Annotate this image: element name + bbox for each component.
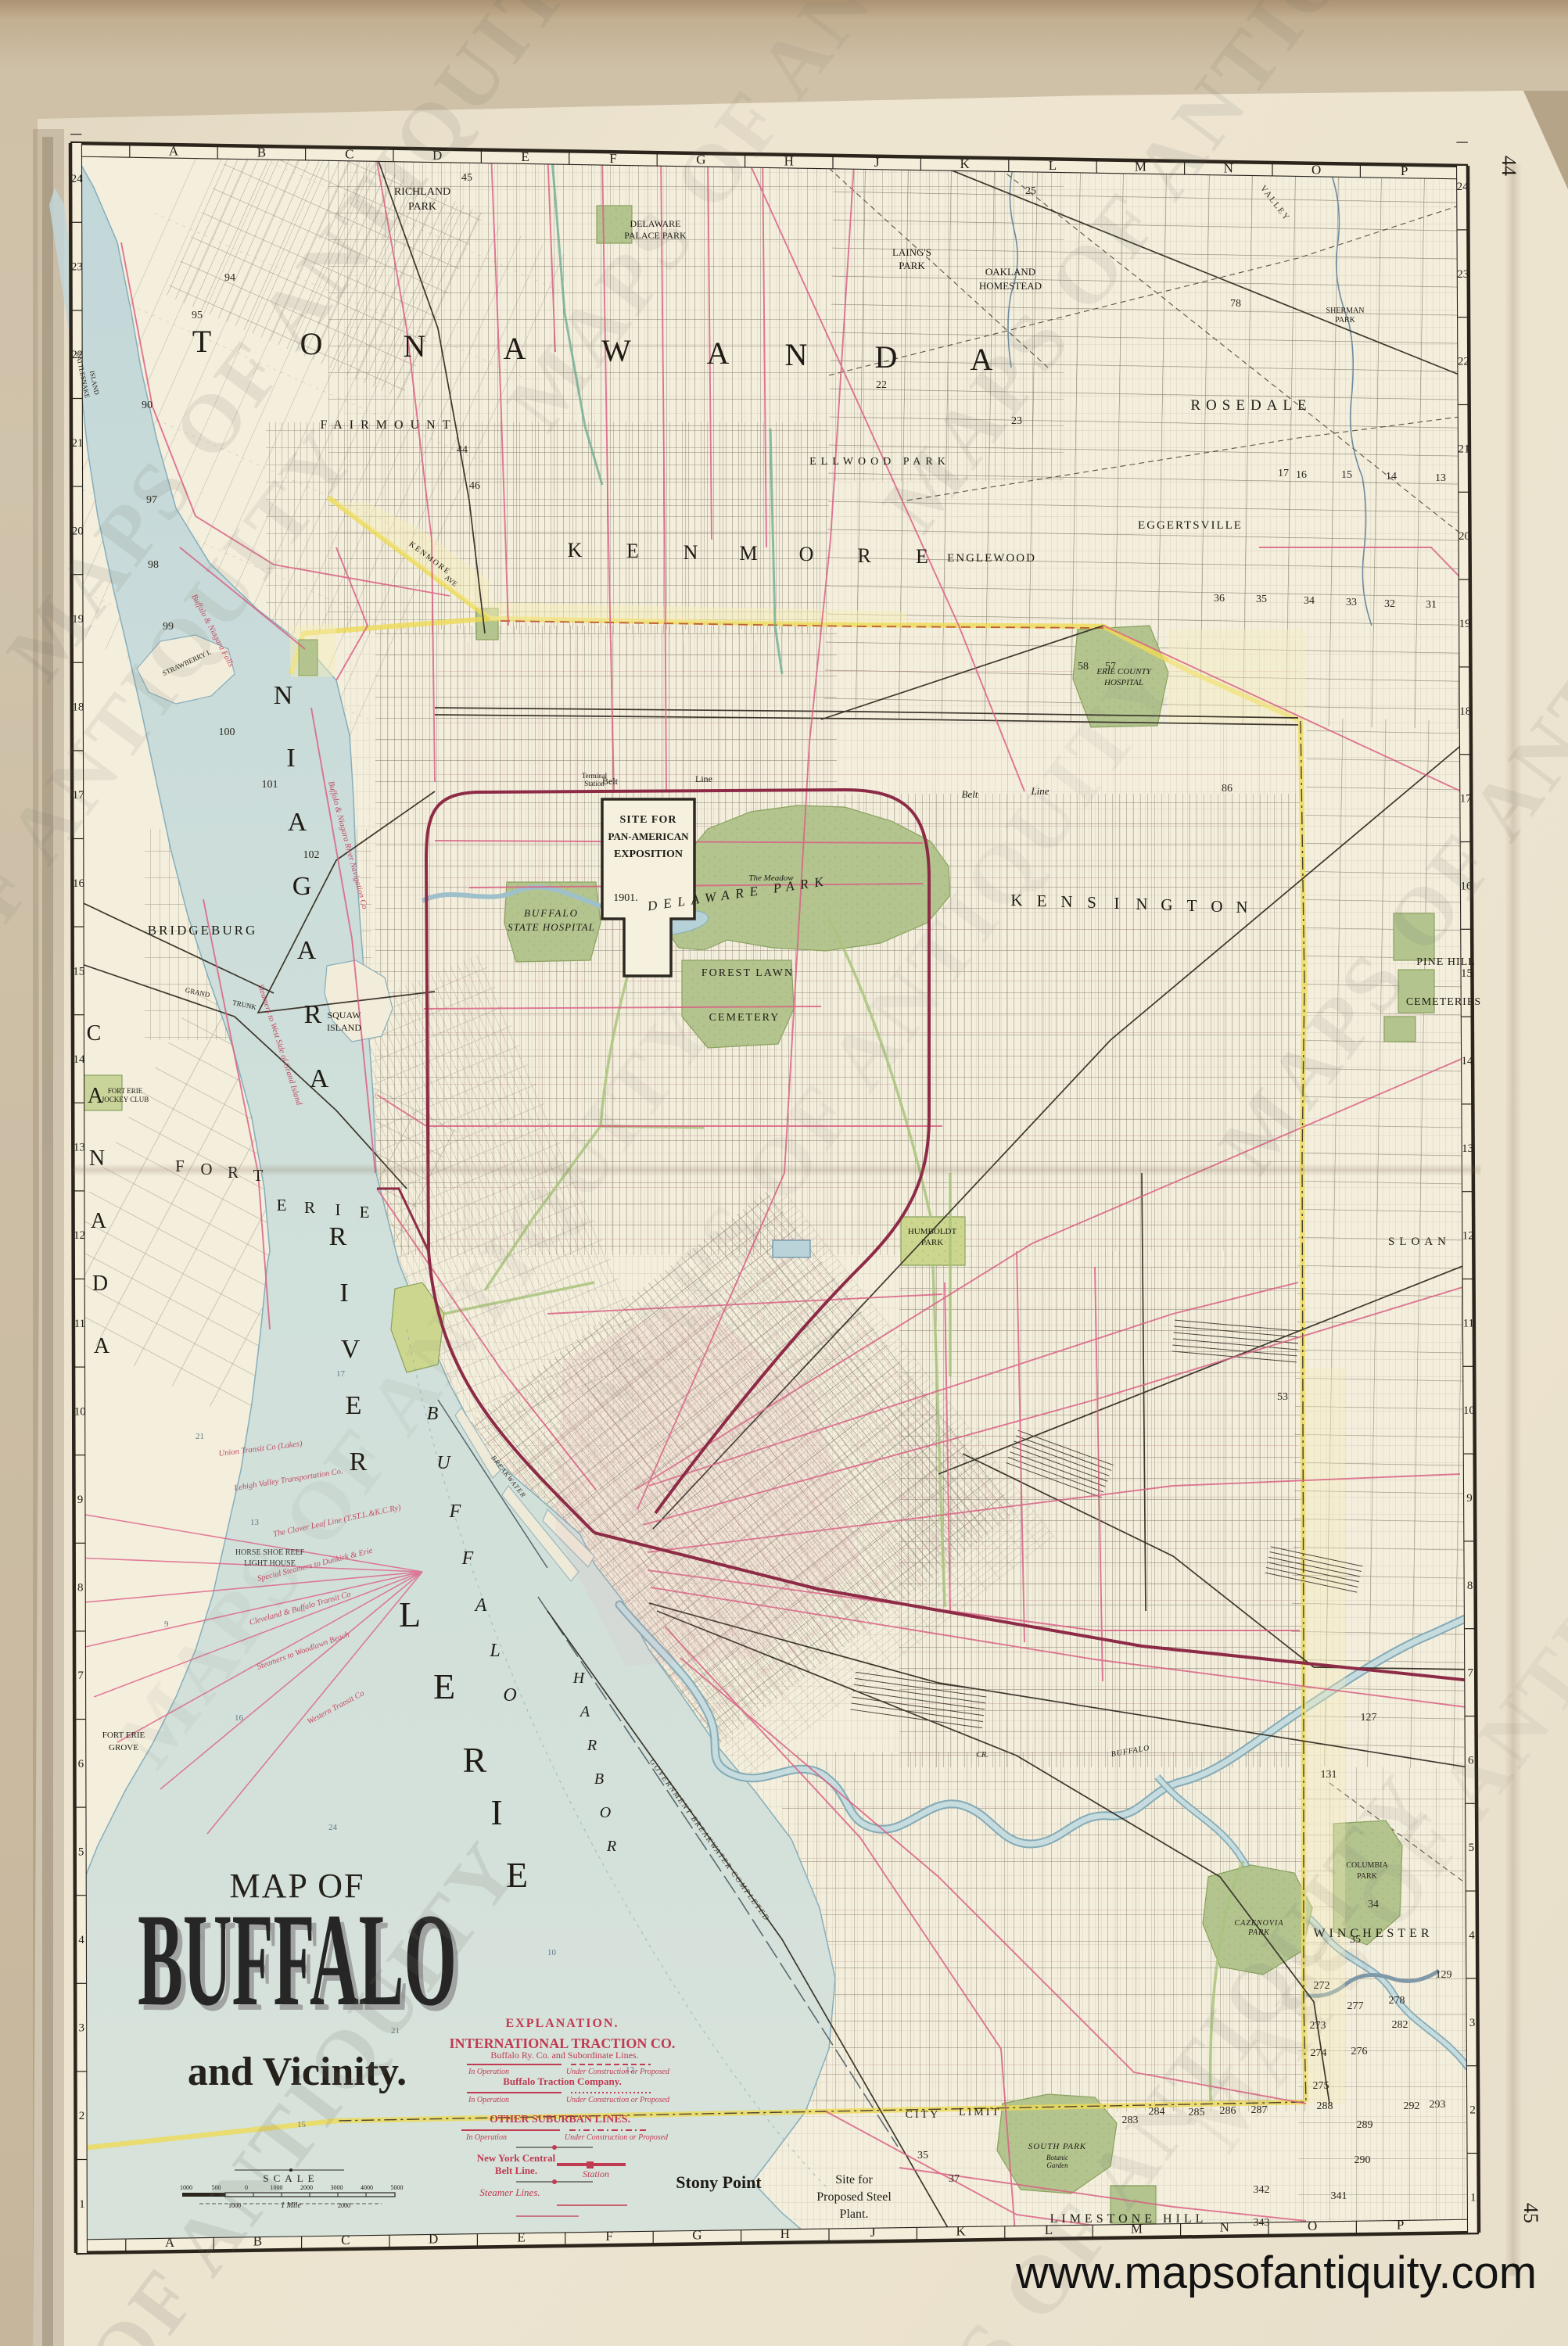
svg-text:R: R [857,544,871,567]
svg-text:R: R [304,1198,315,1217]
svg-text:K: K [956,2224,966,2239]
svg-text:343: 343 [1254,2217,1270,2229]
svg-text:V: V [341,1335,361,1364]
svg-text:A: A [91,1209,107,1233]
svg-text:45: 45 [1520,2203,1542,2223]
svg-text:10: 10 [1463,1404,1475,1417]
svg-text:L: L [1049,158,1057,173]
svg-text:8: 8 [1467,1580,1473,1592]
svg-text:34: 34 [1304,595,1315,607]
svg-text:4: 4 [1469,1929,1475,1942]
svg-text:INTERNATIONAL TRACTION CO.: INTERNATIONAL TRACTION CO. [450,2036,676,2051]
svg-text:S: S [1087,893,1096,912]
svg-text:9: 9 [77,1494,84,1506]
svg-text:O: O [1311,162,1321,177]
svg-text:Garden: Garden [1046,2161,1068,2169]
svg-text:Belt Line.: Belt Line. [495,2165,537,2176]
svg-text:23: 23 [1457,268,1469,281]
svg-text:11: 11 [1463,1317,1474,1329]
svg-text:24: 24 [1457,181,1469,193]
svg-text:1: 1 [1470,2191,1477,2204]
svg-text:N: N [1136,895,1147,913]
svg-text:Belt: Belt [962,788,978,800]
svg-text:58: 58 [1078,661,1089,673]
svg-text:A: A [169,144,179,159]
svg-text:24: 24 [71,173,84,185]
svg-text:100: 100 [219,726,235,738]
svg-text:Under Construction or Proposed: Under Construction or Proposed [566,2096,670,2104]
svg-text:F: F [461,1548,474,1569]
svg-text:E: E [626,540,639,562]
svg-text:35: 35 [917,2150,928,2161]
svg-text:Line: Line [695,773,712,784]
svg-text:18: 18 [1459,705,1471,718]
svg-text:B: B [257,145,266,160]
svg-text:44: 44 [1498,156,1520,176]
svg-text:13: 13 [1435,472,1446,484]
svg-text:15: 15 [1461,967,1473,980]
svg-text:17: 17 [1278,468,1289,479]
svg-text:E: E [916,545,928,568]
svg-text:341: 341 [1331,2190,1347,2202]
svg-text:In Operation: In Operation [465,2133,507,2142]
svg-text:Station: Station [583,2168,609,2179]
svg-text:K: K [960,156,970,171]
svg-text:D: D [875,339,898,375]
svg-text:35: 35 [1256,594,1267,605]
svg-text:86: 86 [1222,783,1233,795]
svg-text:33: 33 [1346,597,1357,608]
svg-text:CEMETERY: CEMETERY [709,1012,780,1024]
svg-text:4000: 4000 [361,2184,373,2191]
svg-text:A: A [707,335,730,371]
svg-text:R: R [587,1737,597,1754]
svg-text:Station: Station [584,780,605,787]
svg-text:R: R [329,1222,347,1251]
svg-text:129: 129 [1436,1969,1452,1981]
svg-text:14: 14 [1386,471,1397,482]
svg-text:90: 90 [142,400,152,411]
svg-text:A: A [297,936,317,965]
svg-text:FORT ERIE: FORT ERIE [108,1087,143,1095]
svg-text:SOUTH PARK: SOUTH PARK [1028,2142,1086,2151]
svg-text:www.mapsofantiquity.com: www.mapsofantiquity.com [1015,2247,1537,2298]
svg-text:A: A [288,808,307,837]
svg-text:J: J [874,155,880,170]
svg-text:23: 23 [71,261,83,274]
svg-text:10: 10 [74,1405,86,1418]
svg-text:1901.: 1901. [613,892,638,904]
svg-text:20: 20 [1459,530,1470,543]
svg-text:14: 14 [74,1053,86,1066]
svg-text:10: 10 [547,1948,557,1957]
svg-text:131: 131 [1321,1769,1337,1781]
svg-text:17: 17 [336,1369,346,1379]
svg-text:E: E [521,149,529,164]
svg-text:36: 36 [1214,593,1225,604]
svg-text:A: A [94,1334,110,1358]
svg-text:LIMIT: LIMIT [959,2107,1001,2118]
svg-text:SLOAN: SLOAN [1388,1236,1451,1248]
svg-text:12: 12 [74,1229,85,1242]
svg-text:Proposed Steel: Proposed Steel [816,2190,892,2204]
svg-text:3: 3 [79,2022,85,2035]
svg-text:275: 275 [1313,2080,1329,2092]
svg-text:N: N [785,337,808,372]
svg-text:SQUAW: SQUAW [327,1010,361,1021]
svg-text:M: M [739,542,757,565]
svg-text:282: 282 [1392,2019,1408,2031]
svg-text:G: G [292,872,312,901]
svg-text:A: A [310,1064,329,1093]
svg-text:F: F [449,1501,461,1522]
svg-text:E: E [277,1196,287,1214]
svg-text:45: 45 [461,172,472,184]
svg-text:SHERMAN: SHERMAN [1326,307,1365,315]
svg-text:CR.: CR. [976,1751,988,1759]
svg-text:R: R [304,1000,322,1029]
svg-text:O: O [600,1804,611,1821]
svg-text:EXPOSITION: EXPOSITION [614,848,683,860]
svg-text:E: E [517,2230,525,2245]
svg-text:FAIRMOUNT: FAIRMOUNT [321,418,457,432]
svg-text:Stony Point: Stony Point [676,2172,762,2192]
svg-text:15: 15 [73,965,84,977]
svg-text:I: I [335,1200,341,1219]
svg-text:5000: 5000 [391,2184,404,2191]
svg-text:I: I [286,744,295,773]
svg-text:G: G [1161,895,1172,914]
svg-text:Buffalo Ry. Co. and Subordinat: Buffalo Ry. Co. and Subordinate Lines. [490,2050,638,2061]
svg-text:O: O [1211,897,1222,916]
svg-text:E: E [360,1203,370,1221]
svg-text:I: I [490,1792,502,1832]
svg-text:7: 7 [1467,1667,1473,1680]
svg-text:9: 9 [164,1620,169,1629]
svg-text:HUMBOLDT: HUMBOLDT [908,1227,957,1236]
svg-text:T: T [1187,896,1197,915]
svg-text:C: C [87,1021,102,1046]
svg-text:276: 276 [1351,2046,1368,2057]
svg-text:I: I [1114,894,1120,913]
svg-text:BUFFALO: BUFFALO [524,907,579,919]
svg-text:A: A [474,1595,487,1616]
svg-text:22: 22 [1458,356,1469,368]
svg-text:78: 78 [1230,298,1241,310]
svg-text:LAING'S: LAING'S [892,246,931,258]
svg-text:8: 8 [77,1582,84,1594]
svg-text:OTHER SUBURBAN LINES.: OTHER SUBURBAN LINES. [490,2114,630,2125]
svg-text:P: P [1397,2217,1404,2232]
svg-text:25: 25 [1025,185,1036,197]
svg-text:6: 6 [78,1758,84,1770]
svg-text:In Operation: In Operation [468,2096,509,2104]
svg-text:New York Central: New York Central [477,2152,556,2164]
svg-text:288: 288 [1317,2100,1333,2112]
svg-text:D: D [429,2231,438,2246]
svg-text:5: 5 [78,1846,84,1858]
svg-text:Steamer Lines.: Steamer Lines. [479,2186,540,2198]
svg-text:Site for: Site for [835,2173,873,2186]
svg-text:H: H [572,1670,586,1687]
svg-text:278: 278 [1389,1995,1405,2007]
svg-text:The Meadow: The Meadow [748,873,794,883]
svg-text:O: O [503,1685,516,1706]
svg-text:290: 290 [1355,2154,1371,2166]
svg-text:R: R [463,1740,487,1780]
svg-text:SITE FOR: SITE FOR [620,814,677,826]
svg-text:EXPLANATION.: EXPLANATION. [505,2017,619,2030]
svg-text:STATE HOSPITAL: STATE HOSPITAL [508,921,595,933]
svg-text:22: 22 [876,379,887,391]
svg-text:E: E [433,1666,455,1706]
svg-text:PARK: PARK [899,260,925,271]
svg-text:46: 46 [469,480,480,492]
svg-text:292: 292 [1404,2100,1420,2112]
svg-text:CITY: CITY [906,2109,941,2121]
svg-text:9: 9 [1466,1492,1473,1505]
svg-text:2: 2 [79,2110,85,2122]
svg-text:D: D [92,1272,108,1296]
svg-text:PARK: PARK [1335,316,1356,325]
svg-text:EGGERTSVILLE: EGGERTSVILLE [1138,519,1243,532]
svg-text:FOREST LAWN: FOREST LAWN [701,967,794,979]
svg-text:L: L [399,1594,421,1634]
svg-text:F: F [605,2229,612,2244]
svg-text:24: 24 [328,1823,338,1832]
svg-text:B: B [594,1770,604,1788]
svg-text:PARK: PARK [921,1238,943,1247]
svg-text:2000: 2000 [338,2202,350,2209]
svg-text:BRIDGEBURG: BRIDGEBURG [148,923,258,938]
svg-text:L: L [489,1641,500,1661]
svg-text:A: A [579,1703,590,1720]
svg-text:P: P [1401,163,1408,178]
svg-text:O: O [799,543,814,565]
svg-text:ENGLEWOOD: ENGLEWOOD [947,552,1036,565]
svg-text:95: 95 [192,310,203,321]
svg-text:44: 44 [457,444,468,456]
svg-text:16: 16 [73,877,85,890]
svg-text:37: 37 [949,2173,960,2185]
svg-text:Plant.: Plant. [840,2208,869,2221]
svg-text:PAN-AMERICAN: PAN-AMERICAN [608,830,689,842]
svg-text:15: 15 [1341,469,1352,481]
svg-text:21: 21 [196,1432,204,1441]
svg-text:3000: 3000 [331,2184,343,2191]
svg-text:Under Construction or Proposed: Under Construction or Proposed [565,2133,669,2142]
svg-text:H: H [780,2226,790,2241]
svg-text:N: N [404,328,426,364]
svg-text:21: 21 [71,437,83,450]
svg-text:N: N [1220,2220,1229,2235]
svg-text:J: J [870,2225,876,2240]
svg-text:19: 19 [1459,618,1471,630]
svg-text:1: 1 [79,2198,85,2211]
svg-text:ROSEDALE: ROSEDALE [1190,397,1311,414]
svg-text:21: 21 [1458,443,1469,455]
svg-text:32: 32 [1384,598,1395,610]
svg-text:289: 289 [1357,2119,1373,2131]
svg-text:JOCKEY CLUB: JOCKEY CLUB [102,1096,149,1103]
svg-text:127: 127 [1361,1712,1377,1724]
svg-text:293: 293 [1430,2099,1446,2111]
svg-text:K: K [568,539,583,561]
svg-text:13: 13 [1462,1143,1473,1155]
svg-text:53: 53 [1277,1391,1288,1403]
svg-text:7: 7 [77,1670,84,1682]
svg-text:C: C [341,2233,350,2247]
svg-text:16: 16 [235,1713,244,1723]
svg-text:N: N [1236,898,1247,917]
svg-text:342: 342 [1254,2184,1270,2196]
svg-text:13: 13 [74,1142,85,1154]
svg-text:G: G [692,2227,701,2242]
svg-text:4: 4 [78,1934,84,1946]
svg-text:U: U [436,1453,451,1473]
svg-text:F: F [609,151,616,166]
svg-text:H: H [784,153,794,168]
svg-text:Botanic: Botanic [1046,2154,1068,2161]
svg-text:14: 14 [1462,1055,1474,1067]
svg-text:Terminal: Terminal [582,772,608,780]
svg-text:2: 2 [1469,2104,1476,2117]
svg-text:N: N [684,541,698,564]
svg-text:Buffalo Traction Company.: Buffalo Traction Company. [503,2075,622,2087]
svg-text:12: 12 [1462,1230,1474,1243]
svg-text:16: 16 [1296,469,1307,481]
svg-text:31: 31 [1426,599,1437,611]
svg-text:N: N [274,681,293,710]
svg-text:R: R [606,1838,616,1855]
svg-text:3: 3 [1469,2017,1476,2029]
svg-text:ISLAND: ISLAND [327,1022,361,1033]
svg-text:11: 11 [74,1318,85,1330]
svg-text:102: 102 [303,849,320,861]
svg-text:101: 101 [262,779,278,791]
svg-text:94: 94 [224,272,235,284]
svg-text:N: N [1060,892,1072,911]
svg-text:I: I [339,1279,348,1308]
svg-text:O: O [1308,2219,1317,2233]
